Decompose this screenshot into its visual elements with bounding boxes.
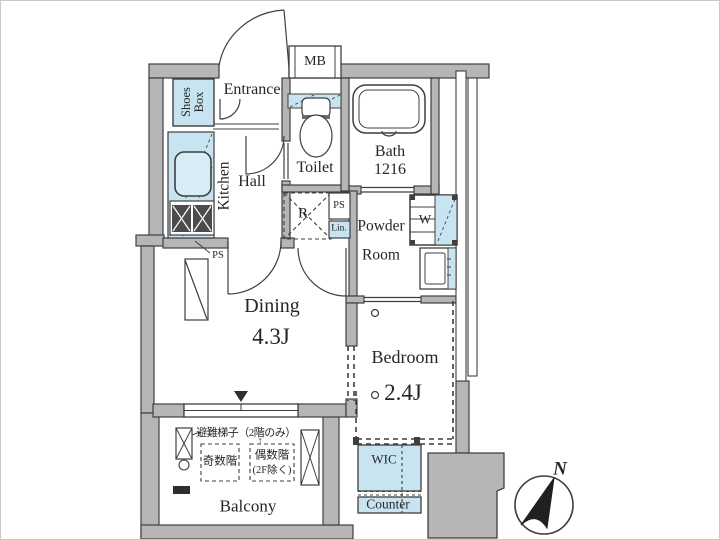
floor-plan: Entrance Shoes Box MB Toilet Bath 1216 K… (0, 0, 720, 540)
washer-pan-icon (410, 195, 457, 245)
powder-line1: Powder (357, 218, 404, 235)
vanity-icon (420, 248, 456, 289)
kitchen-label: Kitchen (215, 161, 232, 210)
odd-floors-note: 奇数階 (203, 456, 238, 469)
pipe-space-hall-label: PS (333, 200, 345, 212)
linen-label: Lin. (331, 224, 347, 235)
toilet-room-fixtures (288, 94, 341, 157)
balcony-fixture-icon (173, 486, 190, 494)
bath-door (361, 188, 414, 193)
compass-north-label: N (553, 458, 567, 479)
wic-label: WIC (371, 453, 396, 468)
bath-size: 1216 (374, 161, 406, 178)
counter-label: Counter (366, 496, 410, 511)
hall-label: Hall (238, 173, 266, 191)
even-floors-exception-note: (2F除く) (252, 465, 291, 477)
floor-plan-drawing (1, 1, 720, 540)
even-floors-note: 偶数階 (255, 450, 290, 463)
balcony-label: Balcony (220, 496, 277, 515)
bedroom-dashed-borders (348, 301, 454, 444)
kitchen-counter (168, 132, 214, 238)
toilet-door (284, 143, 288, 179)
east-double-wall (456, 71, 477, 381)
entrance-label: Entrance (224, 81, 281, 99)
bedroom-sliding-door (364, 298, 421, 302)
toilet-label: Toilet (296, 159, 333, 177)
toilet-icon (300, 98, 332, 157)
dining-label: Dining (244, 295, 300, 317)
window-marker-icon (234, 391, 248, 402)
dining-size-label: 4.3J (252, 324, 290, 350)
hall-door-arc (246, 136, 284, 174)
evacuation-ladder-note: 避難梯子（2階のみ） (196, 427, 296, 439)
shoes-box-label: Shoes Box (180, 79, 206, 125)
bath-label: Bath 1216 (374, 143, 406, 179)
entrance-door-arc (219, 10, 289, 68)
kitchen-sink-icon (175, 152, 211, 196)
washer-label: W (419, 213, 431, 228)
dining-door-arc (228, 241, 281, 294)
up-arrow-glyph: ↑ (258, 435, 263, 446)
refrigerator-label: R (298, 206, 308, 223)
pipe-space-dining-label: PS (212, 250, 224, 262)
powder-line2: Room (362, 247, 400, 264)
pipe-space-dining-shaft (185, 241, 210, 320)
drain-icon (179, 460, 189, 470)
bath-name: Bath (375, 143, 405, 160)
compass-icon (515, 476, 573, 534)
entrance-step (213, 124, 279, 129)
bathtub-icon (353, 85, 425, 136)
bedroom-label: Bedroom (372, 347, 439, 367)
meter-box-label: MB (304, 54, 326, 70)
dining-window (184, 391, 298, 417)
shoesbox-door-arc (220, 99, 240, 119)
stove-icon (170, 201, 214, 235)
adjacent-structure (428, 453, 504, 538)
powder-room-label: Powder Room (357, 212, 404, 271)
bedroom-size-label: 2.4J (384, 380, 422, 406)
powder-door-arc (298, 248, 346, 296)
